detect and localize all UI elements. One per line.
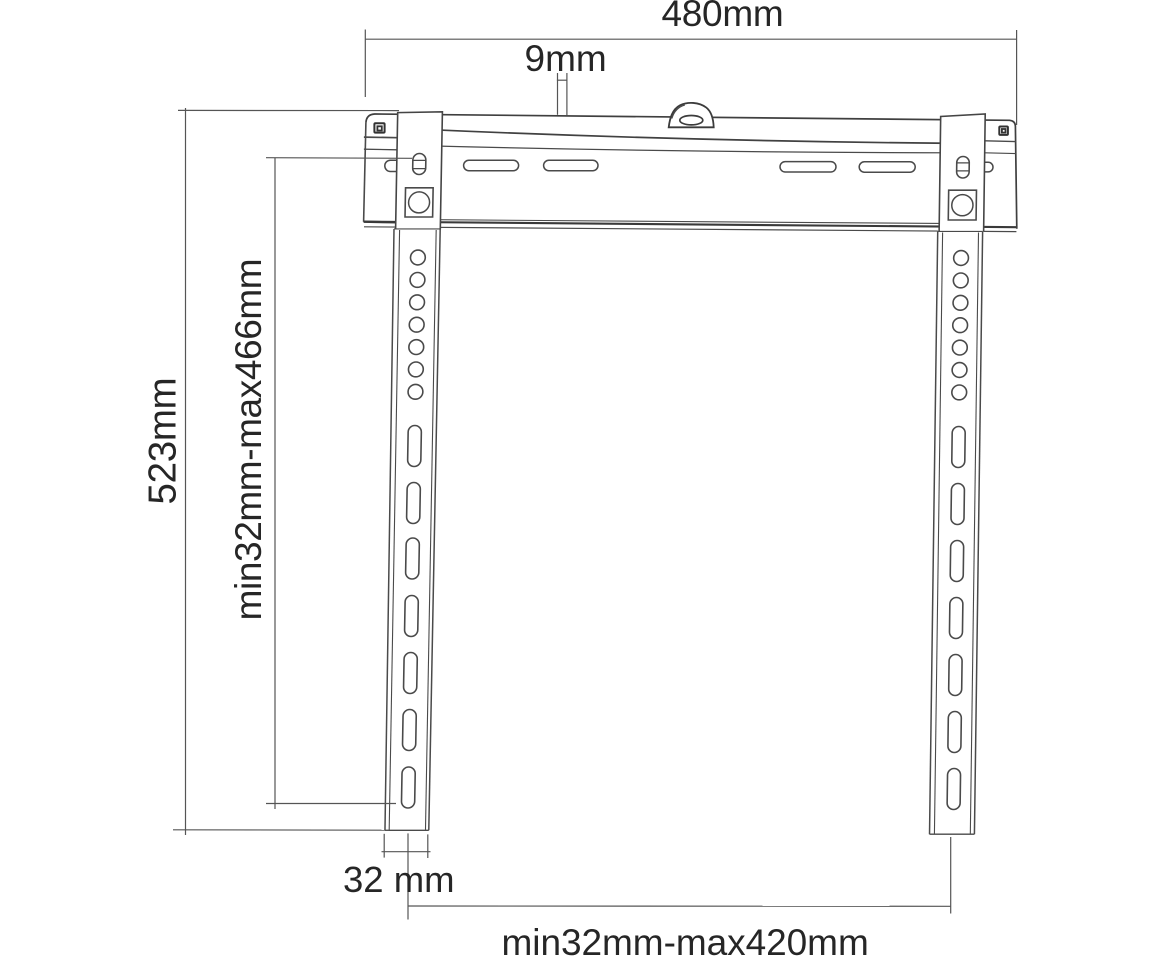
svg-text:min32mm-max420mm: min32mm-max420mm <box>502 922 869 956</box>
svg-text:523mm: 523mm <box>141 378 184 505</box>
svg-text:32 mm: 32 mm <box>343 859 455 900</box>
svg-text:min32mm-max466mm: min32mm-max466mm <box>228 259 269 621</box>
svg-text:480mm: 480mm <box>662 0 784 34</box>
svg-text:9mm: 9mm <box>525 38 607 79</box>
